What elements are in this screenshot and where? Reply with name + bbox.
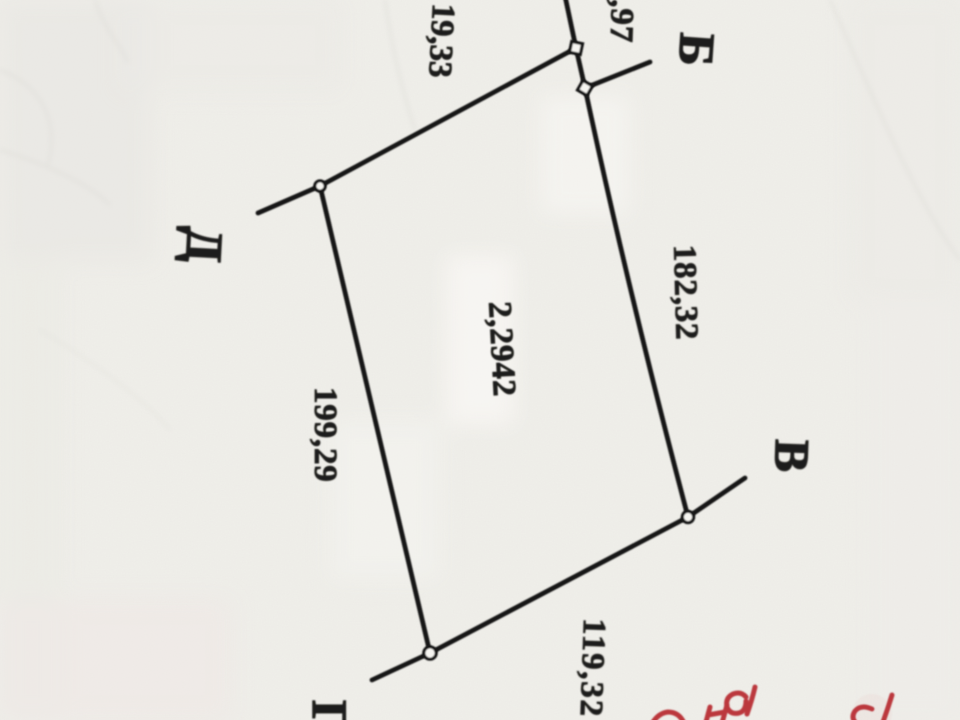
svg-text:Г: Г <box>302 700 358 720</box>
svg-text:199,29: 199,29 <box>307 387 343 483</box>
svg-text:Б: Б <box>668 31 726 68</box>
svg-text:119,32: 119,32 <box>573 618 612 719</box>
svg-text:182,32: 182,32 <box>666 244 704 340</box>
svg-text:19,33: 19,33 <box>421 3 461 79</box>
svg-text:,97: ,97 <box>602 0 640 44</box>
svg-text:2,2942: 2,2942 <box>481 301 522 398</box>
svg-text:Д: Д <box>174 225 233 264</box>
svg-text:В: В <box>764 439 820 474</box>
